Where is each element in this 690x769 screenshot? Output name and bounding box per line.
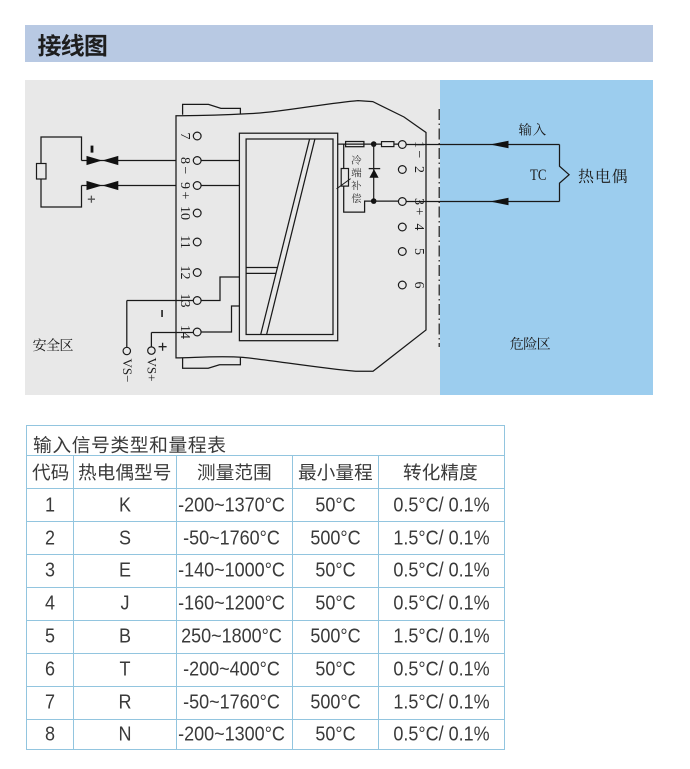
svg-text:12: 12 [177, 266, 192, 280]
svg-text:−: − [177, 166, 192, 174]
svg-text:VS+: VS+ [145, 358, 160, 382]
svg-text:13: 13 [177, 294, 192, 308]
svg-text:3: 3 [411, 198, 426, 205]
svg-text:10: 10 [177, 206, 192, 220]
svg-text:1: 1 [411, 141, 426, 148]
svg-text:2: 2 [411, 166, 426, 173]
svg-text:8: 8 [177, 157, 192, 164]
svg-text:VS−: VS− [120, 359, 135, 383]
svg-text:−: − [411, 150, 426, 158]
svg-text:11: 11 [177, 235, 192, 248]
svg-text:6: 6 [411, 282, 426, 289]
svg-text:5: 5 [411, 248, 426, 255]
svg-text:TC: TC [530, 167, 547, 184]
svg-text:+: + [177, 191, 192, 199]
svg-text:+: + [411, 207, 426, 215]
svg-text:9: 9 [177, 182, 192, 189]
svg-text:4: 4 [411, 224, 426, 231]
svg-text:7: 7 [177, 133, 192, 140]
svg-text:14: 14 [177, 325, 192, 339]
